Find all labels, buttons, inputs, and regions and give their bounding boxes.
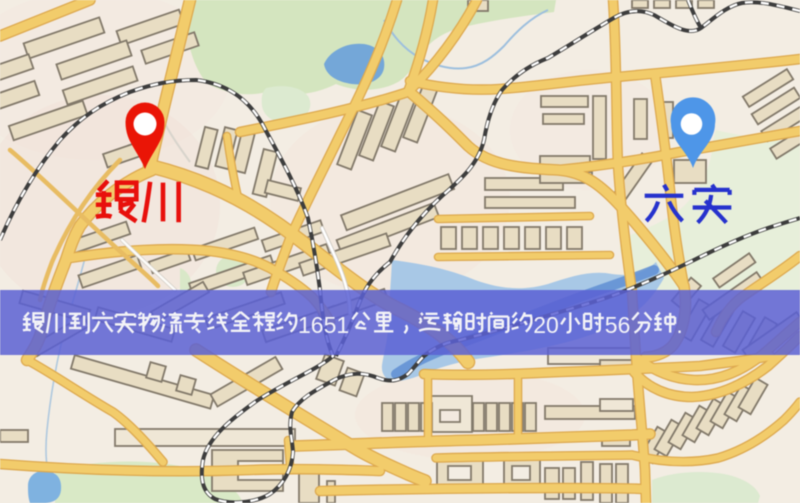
svg-text:.: . <box>676 312 682 338</box>
svg-text:56: 56 <box>605 312 631 338</box>
svg-text:1651: 1651 <box>298 312 349 338</box>
svg-text:20: 20 <box>533 312 559 338</box>
